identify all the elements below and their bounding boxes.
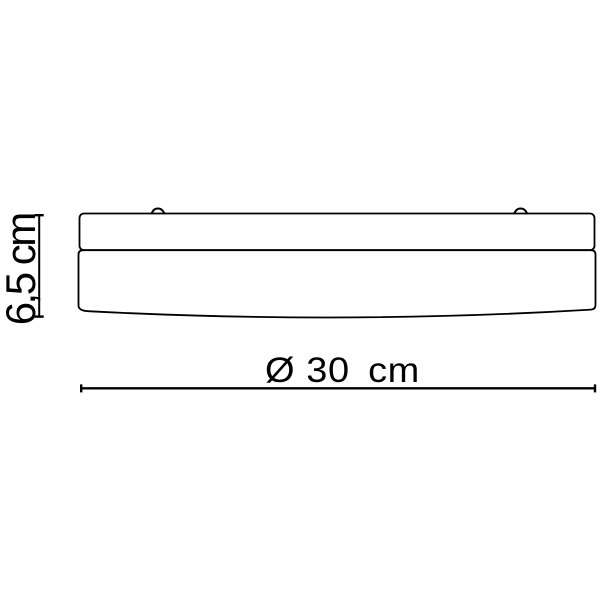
svg-text:Ø 30cm: Ø 30cm [265,350,420,389]
svg-text:6,5 cm: 6,5 cm [0,214,44,326]
